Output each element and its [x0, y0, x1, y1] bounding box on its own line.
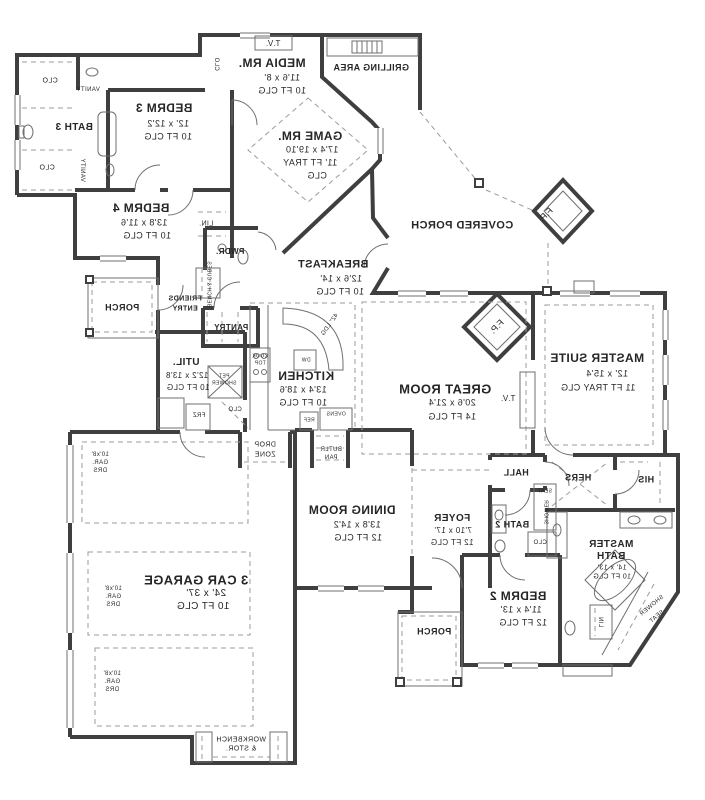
- 12-ft-clg-label: 12 FT CLG: [499, 619, 547, 628]
- 13-8-x-11-6-label: 13'8 x 11'6: [121, 219, 168, 228]
- bench-cubes-label: BENCH & CUBES: [206, 261, 211, 307]
- vanity-label: VANITY: [76, 87, 100, 93]
- bath-label: BATH: [597, 552, 626, 562]
- 10-x8-label: 10'x8': [103, 671, 121, 677]
- clo-label: CLO: [228, 407, 242, 413]
- 12-x-15-4-label: 12' x 15'4: [586, 370, 628, 379]
- 10-ft-clg-label: 10 FT CLG: [123, 232, 171, 241]
- 24-x-37-label: 24' x 37': [186, 589, 226, 599]
- drs-label: DRS: [106, 602, 120, 608]
- 11-ft-tray-label: 11' FT TRAY: [283, 159, 337, 168]
- 11-6-x-8-label: 11'6 x 8': [264, 74, 300, 83]
- f-p-label: F.P.: [488, 318, 506, 336]
- seat-label: SEAT: [649, 609, 666, 624]
- 3-car-garage-label: 3 CAR GARAGE: [144, 574, 248, 587]
- porch-label: PORCH: [105, 304, 140, 313]
- 11-4-x-13-label: 11'4 x 13': [500, 606, 541, 615]
- master-suite-label: MASTER SUITE: [550, 352, 644, 364]
- ref-label: REF: [303, 419, 314, 424]
- 12-2-x-13-8-label: 12'2 x 13'8: [166, 372, 209, 380]
- clo-label: CLO: [213, 57, 219, 71]
- game-rm-label: GAME RM.: [278, 130, 343, 142]
- lin-label: LIN: [597, 617, 603, 628]
- gar-label: GAR.: [104, 679, 120, 685]
- stor-label: & STOR.: [226, 746, 257, 753]
- ovens-label: OVENS: [326, 413, 346, 418]
- pan-label: PAN: [324, 455, 337, 461]
- 10-ft-clg-label: 10 FT CLG: [316, 288, 364, 297]
- 13-4-x-18-6-label: 13'4 x 18'6: [279, 386, 326, 395]
- 10-ft-clg-label: 10 FT CLG: [166, 384, 209, 392]
- gar-label: GAR.: [92, 460, 108, 466]
- 14-x-13-label: 14' x 13': [597, 565, 626, 572]
- clo-label: CLO: [533, 540, 547, 546]
- bath-3-label: BATH 3: [55, 123, 93, 133]
- 12-ft-clg-label: 12 FT CLG: [334, 534, 382, 543]
- 42-ldg-label: 42" LDG: [320, 313, 340, 337]
- 11-ft-tray-clg-label: 11 FT TRAY CLG: [561, 384, 636, 393]
- 17-4-x-19-10-label: 17'4 x 19'10: [286, 146, 339, 155]
- clg-label: CLG: [307, 172, 327, 181]
- his-label: HIS: [638, 476, 654, 485]
- drs-label: DRS: [105, 687, 119, 693]
- top-label: TOP: [254, 362, 265, 367]
- pwdr-label: PWDR.: [216, 248, 245, 256]
- frz-label: FRZ: [193, 413, 206, 419]
- lin-label: LIN.: [199, 221, 213, 228]
- foyer-label: FOYER: [434, 514, 470, 524]
- seat-label: SEAT: [538, 490, 552, 495]
- shower-label: SHOWER: [543, 500, 548, 525]
- bedrm-4-label: BEDRM 4: [113, 202, 170, 214]
- pet-label: PET: [219, 375, 230, 380]
- t-v-label: T.V.: [266, 40, 281, 48]
- bath-2-label: BATH 2: [495, 521, 529, 530]
- kitchen-label: KITCHEN: [278, 370, 334, 382]
- 20-6-x-21-4-label: 20'6 x 21'4: [428, 399, 475, 408]
- shower-label: SHOWER: [212, 382, 237, 387]
- covered-porch-label: COVERED PORCH: [411, 221, 513, 232]
- drop-label: DROP: [254, 442, 276, 449]
- 12-6-x-14-label: 12'6 x 14': [320, 275, 362, 284]
- butlr-label: BUTLR: [320, 447, 342, 453]
- drs-label: DRS: [93, 468, 107, 474]
- floor-plan: T.V.MEDIA RM.11'6 x 8'10 FT CLGCLOGRILLI…: [0, 0, 705, 800]
- vanity-label: VANITY: [79, 158, 85, 182]
- clo-label: CLO: [42, 78, 58, 85]
- 12-x-12-2-label: 12' x 12'2: [147, 120, 189, 129]
- 10-ft-clg-label: 10 FT CLG: [258, 87, 306, 96]
- 13-8-x-14-2-label: 13'8 x 14'2: [333, 521, 380, 530]
- 10-x8-label: 10'x8': [91, 452, 109, 458]
- great-room-label: GREAT ROOM: [399, 383, 492, 396]
- gar-label: GAR.: [105, 594, 121, 600]
- 10-ft-clg-label: 10 FT CLG: [144, 133, 192, 142]
- entry-label: ENTRY: [172, 306, 197, 313]
- room-labels: T.V.MEDIA RM.11'6 x 8'10 FT CLGCLOGRILLI…: [0, 0, 705, 800]
- bedrm-3-label: BEDRM 3: [136, 102, 193, 114]
- util-label: UTIL.: [173, 358, 200, 368]
- hall-label: HALL: [503, 469, 529, 478]
- workbench-label: WORKBENCH: [216, 737, 266, 744]
- 10-ft-clg-label: 10 FT CLG: [177, 602, 230, 612]
- 7-10-x-17-label: 7'10 x 17': [434, 527, 472, 535]
- 12-ft-clg-label: 12 FT CLG: [430, 539, 473, 547]
- 10-ft-clg-label: 10 FT CLG: [593, 574, 631, 581]
- 10-x8-label: 10'x8': [104, 586, 122, 592]
- bedrm-2-label: BEDRM 2: [490, 590, 547, 602]
- f-p-label: F.P.: [537, 206, 555, 224]
- dw-label: DW: [301, 359, 310, 364]
- t-v-label: T.V.: [501, 395, 516, 403]
- 14-ft-clg-label: 14 FT CLG: [428, 413, 476, 422]
- dining-room-label: DINING ROOM: [308, 504, 395, 516]
- pantry-label: PANTRY: [214, 324, 248, 332]
- cook-label: COOK: [252, 355, 268, 360]
- master-label: MASTER: [589, 540, 634, 550]
- zone-label: ZONE: [254, 452, 275, 459]
- 10-ft-clg-label: 10 FT CLG: [279, 399, 327, 408]
- grilling-area-label: GRILLING AREA: [333, 64, 409, 73]
- porch-label: PORCH: [417, 628, 452, 637]
- friends-label: FRIENDS: [168, 296, 202, 303]
- hers-label: HERS: [565, 474, 592, 483]
- clo-label: CLO: [39, 165, 55, 172]
- media-rm-label: MEDIA RM.: [238, 57, 305, 69]
- breakfast-label: BREAKFAST: [298, 260, 369, 271]
